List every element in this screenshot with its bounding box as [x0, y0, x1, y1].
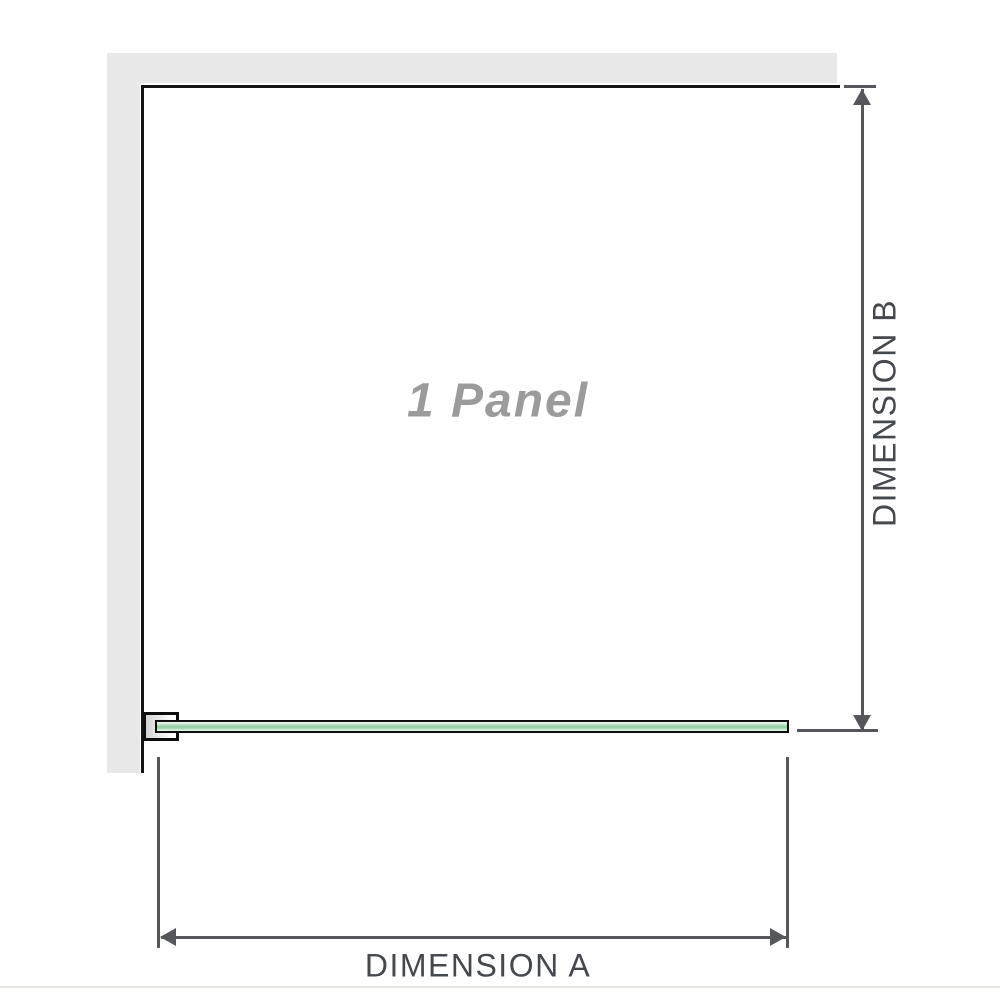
dimension-b-top-tick [844, 85, 876, 88]
enclosure-frame-lines [141, 85, 840, 773]
arrow-left-icon [160, 928, 176, 946]
dimension-b-line [861, 89, 864, 731]
panel-count-label: 1 Panel [407, 374, 589, 429]
dimension-a-label: DIMENSION A [365, 948, 591, 985]
wall-left-section [107, 53, 140, 773]
dimension-a-line [161, 936, 786, 939]
arrow-down-icon [853, 715, 871, 731]
glass-panel [155, 720, 789, 733]
dimension-b-label: DIMENSION B [867, 299, 904, 527]
arrow-right-icon [770, 928, 786, 946]
bottom-divider [0, 986, 1000, 988]
dimension-a-left-extension-line [157, 757, 160, 948]
wall-top-section [107, 53, 837, 83]
dimension-a-right-extension-line [786, 757, 789, 948]
arrow-up-icon [853, 89, 871, 105]
diagram-canvas: DIMENSION B DIMENSION A 1 Panel [0, 0, 1000, 1000]
